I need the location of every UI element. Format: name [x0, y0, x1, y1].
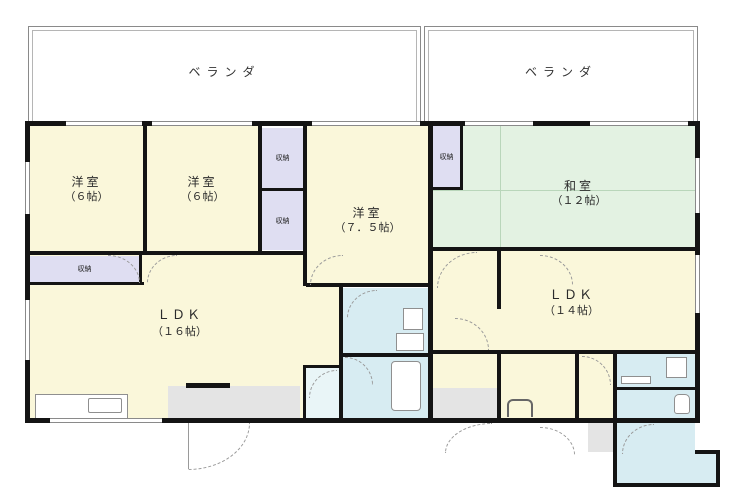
room-washitsu: 和室 （１２帖）	[433, 126, 695, 247]
balcony-left: ベランダ	[28, 26, 421, 123]
yoshitsu1-size: （６帖）	[65, 190, 109, 205]
room-yoshitsu-2: 洋室 （６帖）	[147, 126, 258, 253]
ldk-right-size: （１４帖）	[544, 304, 599, 319]
toilet-middle	[507, 399, 533, 417]
yoshitsu2-size: （６帖）	[181, 190, 225, 205]
wall	[341, 353, 431, 357]
washing-machine-right	[666, 357, 687, 378]
window	[66, 121, 142, 126]
tatami-line-h	[433, 190, 695, 191]
sink-left	[396, 333, 424, 351]
toilet-right	[674, 394, 690, 414]
window	[465, 121, 533, 126]
wall	[497, 251, 501, 309]
yoshitsu1-name: 洋室	[65, 174, 109, 190]
entry-counter-bar	[186, 383, 230, 388]
ldk-left-name: ＬＤＫ	[152, 307, 207, 325]
closet-bottom: 収納	[262, 191, 303, 250]
wall	[28, 251, 306, 255]
wall	[613, 418, 617, 487]
ldk-right-name: ＬＤＫ	[544, 287, 599, 305]
wall	[433, 187, 463, 190]
wall	[433, 418, 700, 423]
bathroom-right-ext	[695, 452, 716, 483]
closet-right: 収納	[433, 126, 460, 187]
wall	[303, 126, 307, 286]
window	[695, 158, 700, 213]
tatami-line-v	[500, 126, 501, 247]
wall	[303, 365, 342, 368]
yoshitsu3-name: 洋室	[335, 205, 401, 221]
floor-plan: ベランダ ベランダ ＬＤＫ （１６帖） 洋室 （６帖） 洋室 （６帖） 洋室 （…	[0, 0, 731, 503]
closet-top: 収納	[262, 128, 303, 188]
wall	[433, 350, 698, 354]
wall	[617, 387, 697, 390]
window	[25, 300, 30, 360]
yoshitsu2-name: 洋室	[181, 174, 225, 190]
wall	[260, 188, 305, 191]
closet-top-label: 収納	[262, 153, 303, 163]
wall	[695, 450, 720, 454]
door-leaf	[188, 423, 189, 469]
washitsu-size: （１２帖）	[552, 194, 607, 209]
entry-right	[433, 388, 497, 418]
wall	[143, 126, 147, 254]
kitchen-sink	[88, 398, 122, 413]
wall	[433, 247, 698, 251]
wall	[613, 483, 720, 487]
window	[25, 162, 30, 214]
washing-machine-left	[403, 308, 423, 330]
entry-porch-right	[588, 420, 613, 452]
bathtub-left	[391, 361, 421, 411]
wall	[716, 450, 720, 487]
balcony-right-label: ベランダ	[525, 63, 597, 80]
window	[590, 121, 688, 126]
closet-right-label: 収納	[433, 152, 460, 162]
ldk-left-size: （１６帖）	[152, 325, 207, 340]
room-yoshitsu-1: 洋室 （６帖）	[30, 126, 143, 253]
window	[695, 255, 700, 313]
window	[152, 121, 252, 126]
wall	[303, 365, 306, 420]
sink-right	[621, 376, 651, 384]
door-arc-entry-right-2	[540, 427, 575, 455]
washitsu-name: 和室	[552, 178, 607, 194]
wall	[497, 354, 501, 420]
window	[50, 418, 162, 423]
balcony-right: ベランダ	[424, 26, 698, 123]
wall	[575, 354, 579, 420]
yoshitsu3-size: （７．５帖）	[335, 221, 401, 236]
window	[312, 121, 420, 126]
door-arc-entry-right-1	[445, 423, 492, 453]
entry-left	[168, 386, 300, 418]
wall	[460, 126, 463, 189]
closet-bottom-label: 収納	[262, 216, 303, 226]
door-arc-entry-left	[188, 423, 250, 470]
wall-divider	[428, 121, 433, 423]
balcony-left-label: ベランダ	[188, 63, 260, 80]
